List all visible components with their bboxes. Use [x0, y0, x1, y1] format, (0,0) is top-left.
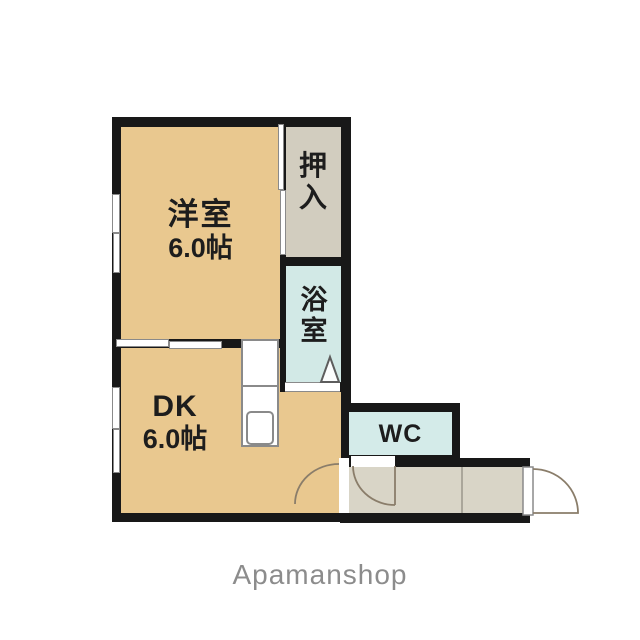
western-room-label: 洋室 6.0帖: [121, 198, 280, 263]
room-dk-extension: [280, 392, 341, 513]
western-window-icon: [112, 194, 120, 233]
dk-room-name: DK: [115, 390, 235, 424]
bath-door-opening: [285, 382, 340, 392]
western-room-size: 6.0帖: [121, 233, 280, 263]
dk-door-opening: [339, 458, 349, 513]
kitchen-sink-icon: [246, 411, 274, 445]
partition-sliding-door-icon: [116, 339, 169, 347]
western-window-icon: [113, 233, 120, 273]
closet-sliding-door-icon: [280, 190, 286, 255]
wc-label: WC: [349, 420, 452, 448]
partition-sliding-door-icon: [169, 341, 222, 349]
western-room-name: 洋室: [121, 198, 280, 233]
apamanshop-watermark: Apamanshop: [0, 559, 640, 591]
wc-door-opening: [351, 456, 395, 467]
entrance-door-swing-icon: [533, 469, 578, 513]
bath-label: 浴室: [298, 285, 330, 346]
counter-divider-line: [243, 385, 277, 387]
dk-room-size: 6.0帖: [115, 424, 235, 454]
floor-plan: 洋室 6.0帖 押入 浴室 DK 6.0帖 WC Apamanshop: [0, 0, 640, 640]
entry-hallway: [348, 467, 530, 513]
dk-room-label: DK 6.0帖: [115, 390, 235, 454]
closet-label: 押入: [297, 150, 329, 213]
closet-sliding-door-icon: [278, 124, 284, 190]
